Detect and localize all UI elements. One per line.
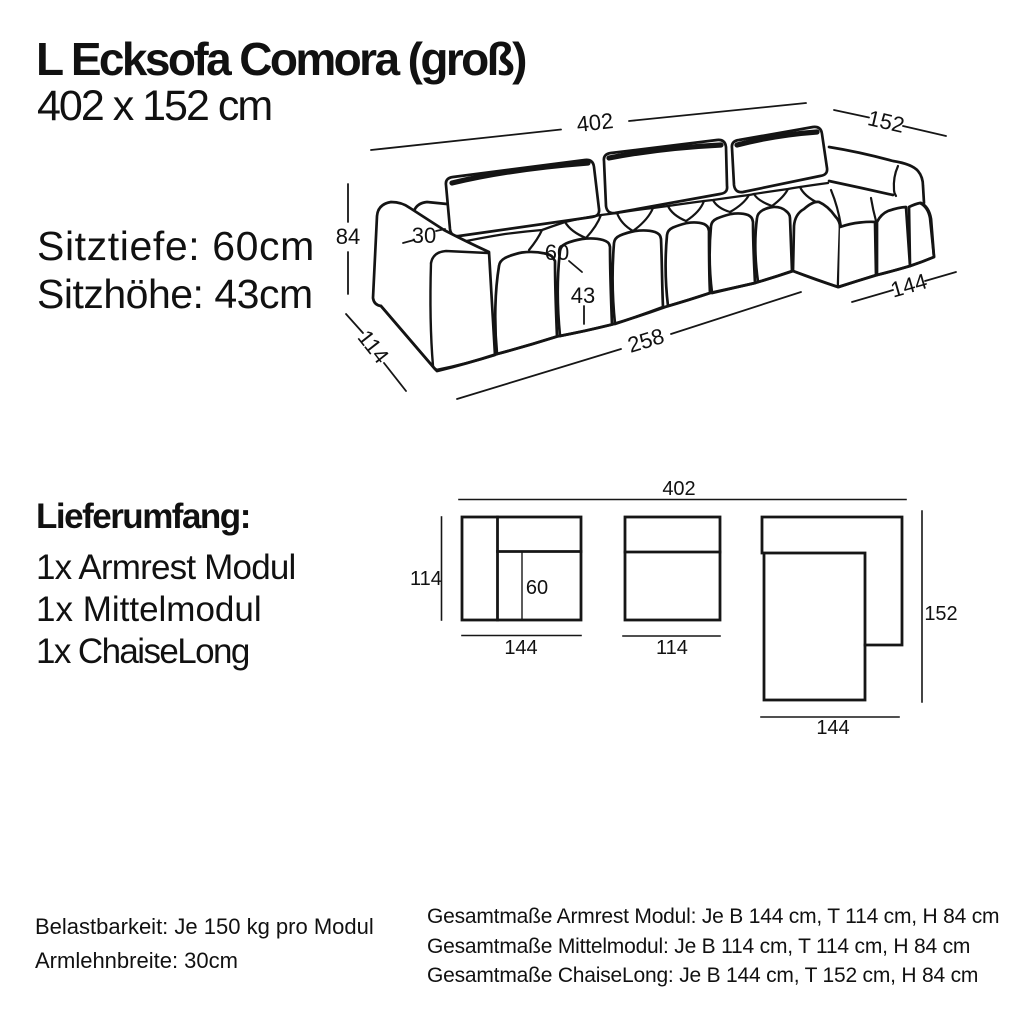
svg-text:144: 144 [888,268,930,302]
svg-text:60: 60 [545,240,569,265]
svg-text:60: 60 [526,577,548,599]
svg-text:114: 114 [353,325,394,368]
svg-text:114: 114 [656,637,688,659]
svg-text:402: 402 [575,108,614,137]
svg-text:114: 114 [410,568,442,590]
svg-text:258: 258 [625,323,667,358]
svg-text:43: 43 [571,283,595,308]
svg-text:402: 402 [662,478,695,500]
svg-text:152: 152 [865,105,906,138]
svg-text:84: 84 [336,224,360,249]
svg-text:152: 152 [924,603,957,625]
svg-text:144: 144 [504,637,537,659]
svg-text:144: 144 [816,717,849,739]
svg-text:30: 30 [412,223,436,248]
